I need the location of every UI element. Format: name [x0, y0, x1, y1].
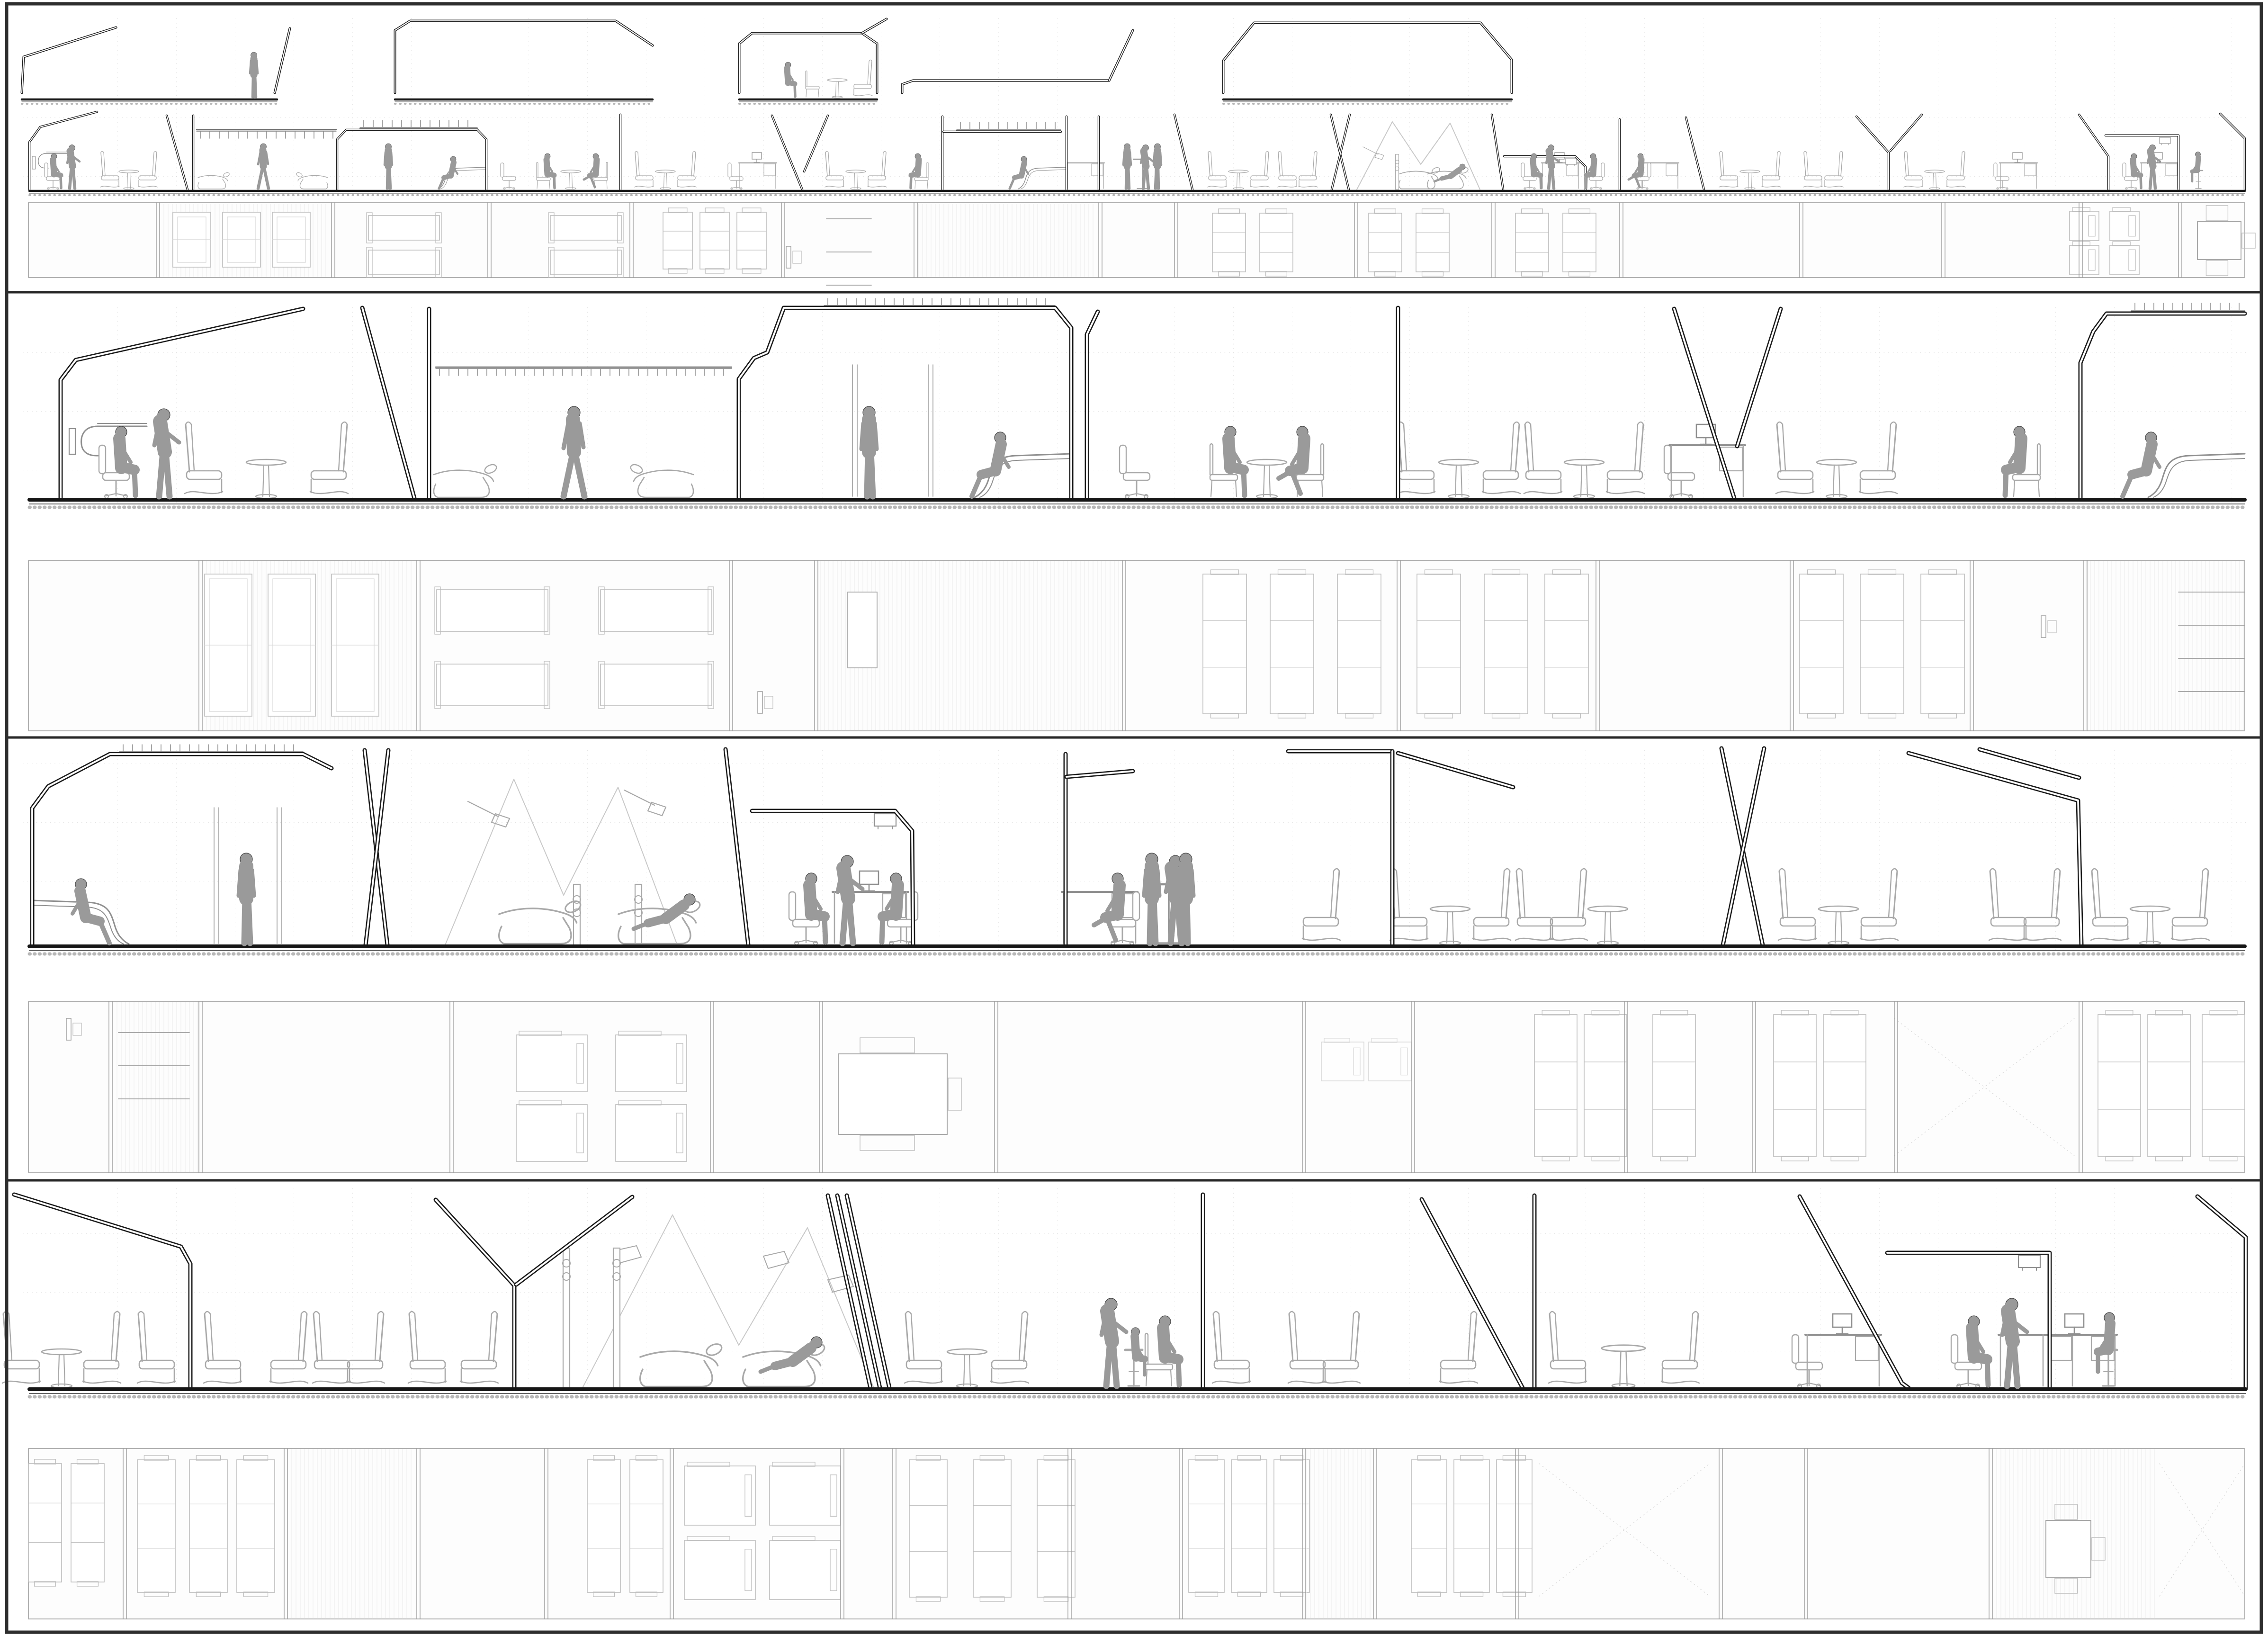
- section-drawing-svg: [0, 0, 2268, 1636]
- post-lineart: [563, 1248, 570, 1388]
- section-band-3: [19, 745, 2249, 1173]
- grid-dots: [19, 17, 2249, 196]
- overview-upper-pavilions: [19, 17, 2249, 196]
- tablet-lineart: [69, 429, 75, 454]
- floor-plan-strip: [28, 560, 2245, 731]
- tablet-lineart: [32, 156, 36, 169]
- section-band-4: [2, 1187, 2249, 1619]
- floor-plan-strip: [28, 203, 2255, 285]
- drawing-root: [2, 4, 2261, 1632]
- section-band-2: [19, 298, 2249, 731]
- post-lineart: [573, 884, 581, 945]
- post-lineart: [613, 1248, 620, 1388]
- floor-slab: [29, 946, 2245, 954]
- post-lineart: [635, 884, 642, 945]
- post-lineart: [1395, 154, 1399, 189]
- floor-slab: [29, 1389, 2246, 1397]
- floor-plan-strip: [28, 1448, 2245, 1619]
- floor-plan-strip: [28, 1001, 2245, 1173]
- architectural-drawing-sheet: Architectural presentation sheet: four l…: [0, 0, 2268, 1636]
